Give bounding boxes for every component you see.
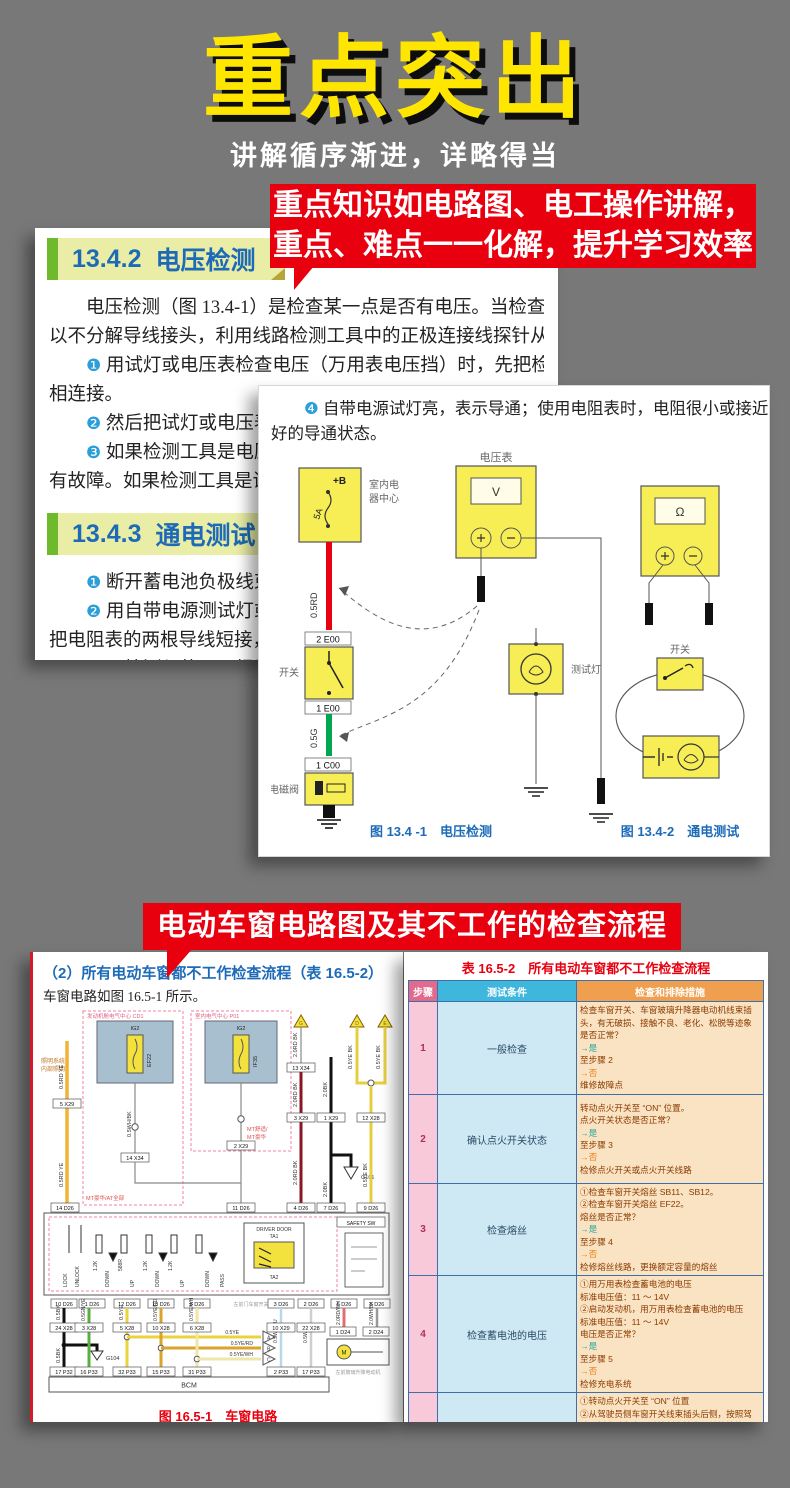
svg-text:0.5GN/YE: 0.5GN/YE: [81, 1298, 87, 1321]
connector: 9 D26: [357, 1203, 385, 1212]
section-number: 13.4.3: [72, 520, 142, 549]
svg-text:11 D26: 11 D26: [232, 1206, 249, 1212]
connector: 2 X29: [227, 1141, 255, 1150]
step-cell: 3: [409, 1184, 438, 1276]
svg-text:1.2K: 1.2K: [168, 1260, 174, 1271]
connector: 1 X29: [317, 1113, 345, 1122]
svg-text:UNLOCK: UNLOCK: [75, 1265, 81, 1287]
svg-text:0.5YE BK: 0.5YE BK: [348, 1045, 354, 1069]
connector: 11 D26: [227, 1203, 255, 1212]
connector: 17 P33: [297, 1367, 325, 1376]
svg-text:开关: 开关: [279, 666, 299, 679]
actions-cell: 检查车窗开关、车窗玻璃升降器电动机线束插头，有无破损、接触不良、老化、松脱等迹象…: [577, 1002, 764, 1095]
svg-text:0.5WH/BK: 0.5WH/BK: [127, 1111, 133, 1137]
col-header-step: 步骤: [409, 981, 438, 1002]
svg-text:2 E00: 2 E00: [316, 634, 340, 644]
svg-text:0.5RD: 0.5RD: [309, 592, 319, 618]
circuit-heading: （2）所有电动车窗都不工作检查流程（表 16.5-2）: [43, 962, 397, 983]
svg-text:2.0WH/BK: 2.0WH/BK: [369, 1301, 375, 1325]
svg-text:SAFETY SW: SAFETY SW: [347, 1221, 376, 1227]
svg-text:1.2K: 1.2K: [93, 1260, 99, 1271]
callout-tail: [167, 948, 193, 978]
svg-text:13 X34: 13 X34: [292, 1066, 309, 1072]
svg-text:0.5RD YE: 0.5RD YE: [59, 1162, 65, 1187]
probe: [705, 603, 713, 625]
table-row: 4检查蓄电池的电压①用万用表检查蓄电池的电压标准电压值：11 ～ 14V②启动发…: [409, 1276, 764, 1393]
svg-text:G: G: [299, 1021, 303, 1027]
svg-text:1 X29: 1 X29: [324, 1116, 338, 1122]
svg-text:16 P33: 16 P33: [80, 1370, 97, 1376]
svg-text:发动机舱电气中心 CD1: 发动机舱电气中心 CD1: [87, 1012, 144, 1020]
connector: 14 D26: [51, 1203, 79, 1212]
svg-text:2 D24: 2 D24: [369, 1330, 384, 1336]
section-number: 13.4.2: [72, 245, 142, 274]
table-row: 2确认点火开关状态转动点火开关至 “ON” 位置。点火开关状态是否正常？→是至步…: [409, 1095, 764, 1184]
actions-cell: ①检查车窗开关熔丝 SB11、SB12。②检查车窗开关熔丝 EF22。熔丝是否正…: [577, 1184, 764, 1276]
svg-text:室内电: 室内电: [369, 478, 399, 491]
section-title: 电压检测: [156, 241, 256, 277]
callout-top-line2: 重点、难点一一化解，提升学习效率: [270, 226, 756, 266]
svg-text:2 X29: 2 X29: [234, 1144, 248, 1150]
svg-text:5 X29: 5 X29: [60, 1102, 74, 1108]
svg-text:DOWN: DOWN: [105, 1271, 111, 1287]
svg-text:2.0BK: 2.0BK: [323, 1182, 329, 1197]
switch-box: 开关: [279, 647, 353, 699]
probe-arrow-2: [339, 610, 479, 736]
svg-text:MT舒适/: MT舒适/: [247, 1125, 268, 1133]
svg-text:M: M: [342, 1351, 347, 1357]
connector: 10 X28: [147, 1323, 175, 1332]
connector: 13 X34: [287, 1063, 315, 1072]
note-line1: 自带电源试灯亮，表示导通；使用电阻表时，电阻很小或接近 0，表示该部件具有良: [323, 399, 770, 418]
window-circuit-page: （2）所有电动车窗都不工作检查流程（表 16.5-2） 车窗电路如图 16.5-…: [30, 952, 403, 1422]
callout-tail: [294, 266, 314, 290]
svg-text:0.5YE/RD: 0.5YE/RD: [231, 1341, 254, 1347]
svg-text:IG2: IG2: [237, 1026, 246, 1032]
connector: 4 D26: [287, 1203, 315, 1212]
connector: 15 P33: [147, 1367, 175, 1376]
connector: 8 D26: [184, 1299, 210, 1308]
svg-text:588R: 588R: [118, 1259, 124, 1271]
svg-text:开关: 开关: [670, 643, 690, 656]
connector-1C00: 1 C00: [305, 758, 351, 771]
svg-text:10 X28: 10 X28: [152, 1326, 169, 1332]
solenoid-valve: 电磁阀: [271, 773, 353, 805]
svg-text:DOWN: DOWN: [155, 1271, 161, 1287]
svg-text:电磁阀: 电磁阀: [271, 783, 299, 796]
svg-text:2.0RD BK: 2.0RD BK: [293, 1160, 299, 1185]
svg-text:UP: UP: [130, 1279, 136, 1287]
svg-text:Ω: Ω: [676, 505, 685, 519]
connector: 6 D26: [331, 1299, 357, 1308]
svg-text:17 P32: 17 P32: [55, 1370, 72, 1376]
table-title: 表 16.5-2 所有电动车窗都不工作检查流程: [404, 958, 768, 977]
section-header-1342: 13.4.2 电压检测: [47, 238, 285, 280]
connector: 2 D24: [363, 1327, 389, 1336]
connector: 5 D26: [364, 1299, 390, 1308]
svg-text:DOWN: DOWN: [205, 1271, 211, 1287]
svg-text:7 D26: 7 D26: [324, 1206, 339, 1212]
svg-text:2.0RD/WH: 2.0RD/WH: [336, 1301, 342, 1325]
callout-top-line1: 重点知识如电路图、电工操作讲解，: [270, 186, 756, 226]
book-line: 以不分解导线接头，利用线路检测工具中的正极连接线探针从导线接头: [49, 323, 544, 352]
callout-middle-text: 电动车窗电路图及其不工作的检查流程: [157, 910, 667, 942]
note-line2: 好的导通状态。: [271, 424, 387, 443]
svg-text:LOCK: LOCK: [63, 1273, 69, 1287]
svg-text:2.0RD BK: 2.0RD BK: [293, 1032, 299, 1057]
driver-door-switch: DRIVER DOOR TA1 TA2: [244, 1223, 304, 1283]
connector: 13 D26: [148, 1299, 174, 1308]
connector: 10 X29: [267, 1323, 295, 1332]
svg-text:17 P33: 17 P33: [302, 1370, 319, 1376]
svg-text:器中心: 器中心: [369, 492, 399, 505]
window-motor: M: [327, 1339, 389, 1365]
svg-text:3 X29: 3 X29: [294, 1116, 308, 1122]
connector: 16 P33: [75, 1367, 103, 1376]
section-header-1343: 13.4.3 通电测试: [47, 513, 285, 555]
connector: 12 X28: [357, 1113, 385, 1122]
connector: 7 D26: [317, 1203, 345, 1212]
svg-text:32 P33: 32 P33: [118, 1370, 135, 1376]
svg-text:0.5YE BK: 0.5YE BK: [363, 1163, 369, 1187]
connector-1E00: 1 E00: [305, 701, 351, 714]
svg-text:0.5YE: 0.5YE: [225, 1330, 239, 1336]
connector: 1 D24: [330, 1327, 356, 1336]
svg-text:1 D24: 1 D24: [336, 1330, 351, 1336]
svg-text:IF35: IF35: [253, 1056, 259, 1067]
connector: 31 P33: [183, 1367, 211, 1376]
svg-text:31 P33: 31 P33: [188, 1370, 205, 1376]
svg-text:0.5YE BK: 0.5YE BK: [376, 1045, 382, 1069]
svg-text:10 X29: 10 X29: [272, 1326, 289, 1332]
connector: 3 X28: [75, 1323, 103, 1332]
svg-text:D: D: [355, 1021, 359, 1027]
condition-cell: 检查熔丝: [438, 1184, 577, 1276]
probe: [477, 576, 485, 602]
svg-text:测试灯: 测试灯: [571, 663, 601, 676]
svg-text:14 X34: 14 X34: [126, 1156, 143, 1162]
check-table: 步骤 测试条件 检查和排除措施 1一般检查检查车窗开关、车窗玻璃升降器电动机线束…: [408, 980, 764, 1422]
svg-text:IG2: IG2: [131, 1026, 140, 1032]
step-cell: 4: [409, 1276, 438, 1393]
connector: 5 X29: [53, 1099, 81, 1108]
safety-switch-box: SAFETY SW: [337, 1217, 385, 1227]
svg-text:DRIVER DOOR: DRIVER DOOR: [256, 1227, 292, 1233]
svg-text:0.5YE/WH: 0.5YE/WH: [189, 1297, 195, 1321]
col-header-condition: 测试条件: [438, 981, 577, 1002]
voltage-check-figure: 电压表 +B 5A 室内电 器中心 0.5RD 2 E00 开关 1: [271, 448, 753, 840]
actions-cell: ①转动点火开关至 “ON” 位置②从驾驶员侧车窗开关线束插头后侧，按照驾驶员侧电…: [577, 1393, 764, 1422]
probe: [645, 603, 653, 625]
connector: 10 D26: [51, 1299, 77, 1308]
voltmeter-label: 电压表: [480, 450, 513, 464]
svg-text:MT豪华/AT全部: MT豪华/AT全部: [86, 1194, 125, 1202]
test-lamp: 测试灯: [509, 642, 601, 696]
connector: 6 X28: [183, 1323, 211, 1332]
svg-text:+B: +B: [333, 476, 346, 487]
svg-text:0.5BK: 0.5BK: [56, 1305, 62, 1320]
svg-text:BCM: BCM: [181, 1383, 197, 1390]
continuity-switch: 开关: [657, 643, 703, 690]
svg-text:0.5BK: 0.5BK: [56, 1348, 62, 1363]
svg-text:G104: G104: [106, 1356, 119, 1362]
promo-graphic: 重点突出 讲解循序渐进，详略得当 重点知识如电路图、电工操作讲解， 重点、难点一…: [0, 0, 790, 1488]
svg-text:14 D26: 14 D26: [56, 1206, 74, 1212]
actions-cell: 转动点火开关至 “ON” 位置。点火开关状态是否正常？→是至步骤 3→否检修点火…: [577, 1095, 764, 1184]
connector: 3 D26: [268, 1299, 294, 1308]
connector: 12 D26: [114, 1299, 140, 1308]
diagram-page: ❹ 自带电源试灯亮，表示导通；使用电阻表时，电阻很小或接近 0，表示该部件具有良…: [258, 385, 770, 857]
ground-symbol: [524, 788, 548, 796]
table-row: 3检查熔丝①检查车窗开关熔丝 SB11、SB12。②检查车窗开关熔丝 EF22。…: [409, 1184, 764, 1276]
connector: 14 X34: [121, 1153, 149, 1162]
connector: 2 P33: [267, 1367, 295, 1376]
connector: 5 X28: [113, 1323, 141, 1332]
svg-text:2 P33: 2 P33: [274, 1370, 288, 1376]
circuit-caption: 图 16.5-1 车窗电路: [33, 1406, 403, 1422]
svg-text:2.0RD BK: 2.0RD BK: [293, 1082, 299, 1107]
svg-text:C: C: [267, 1358, 271, 1364]
ground-symbol: [589, 814, 613, 822]
ground-G104: [91, 1351, 103, 1360]
condition-cell: 检查蓄电池的电压: [438, 1276, 577, 1393]
table-row: 1一般检查检查车窗开关、车窗玻璃升降器电动机线束插头，有无破损、接触不良、老化、…: [409, 1002, 764, 1095]
check-table-page: 表 16.5-2 所有电动车窗都不工作检查流程 步骤 测试条件 检查和排除措施 …: [404, 952, 768, 1422]
condition-cell: 一般检查: [438, 1002, 577, 1095]
connector: 17 P32: [50, 1367, 78, 1376]
svg-text:TA1: TA1: [270, 1234, 279, 1240]
voltmeter: V: [456, 466, 536, 558]
window-circuit-figure: 照明系统- 内部照明 0.5RD YE 0.5RD YE 5 X29 发动机舱电…: [39, 1007, 394, 1399]
svg-text:UP: UP: [180, 1279, 186, 1287]
svg-text:9 D26: 9 D26: [364, 1206, 379, 1212]
svg-text:15 P33: 15 P33: [152, 1370, 169, 1376]
connector: 22 X28: [297, 1323, 325, 1332]
table-row: 5检查驾驶员侧电动车窗开关①转动点火开关至 “ON” 位置②从驾驶员侧车窗开关线…: [409, 1393, 764, 1422]
svg-text:EF22: EF22: [147, 1054, 153, 1067]
condition-cell: 检查驾驶员侧电动车窗开关: [438, 1393, 577, 1422]
svg-text:1 C00: 1 C00: [316, 760, 340, 770]
svg-text:2 D26: 2 D26: [304, 1302, 319, 1308]
note-badge: ❹: [304, 399, 319, 418]
svg-text:左前玻璃升降电动机: 左前玻璃升降电动机: [335, 1369, 380, 1376]
connector: 3 X29: [287, 1113, 315, 1122]
svg-text:12 X28: 12 X28: [362, 1116, 379, 1122]
diagram-note: ❹ 自带电源试灯亮，表示导通；使用电阻表时，电阻很小或接近 0，表示该部件具有良…: [271, 396, 757, 446]
svg-text:1 E00: 1 E00: [316, 703, 340, 713]
svg-text:22 X28: 22 X28: [302, 1326, 319, 1332]
section-title: 通电测试: [156, 516, 256, 552]
col-header-actions: 检查和排除措施: [577, 981, 764, 1002]
svg-text:2.0BK: 2.0BK: [323, 1082, 329, 1097]
actions-cell: ①用万用表检查蓄电池的电压标准电压值：11 ～ 14V②启动发动机，用万用表检查…: [577, 1276, 764, 1393]
svg-text:左前门车窗开关: 左前门车窗开关: [233, 1301, 268, 1308]
svg-text:MT豪华: MT豪华: [247, 1133, 266, 1141]
circuit-subheading: 车窗电路如图 16.5-1 所示。: [43, 985, 403, 1005]
connector: 2 D26: [298, 1299, 324, 1308]
callout-middle: 电动车窗电路图及其不工作的检查流程: [143, 903, 681, 950]
svg-text:0.5YE/WH: 0.5YE/WH: [230, 1352, 254, 1358]
svg-text:24 X28: 24 X28: [55, 1326, 72, 1332]
ohmmeter: Ω: [641, 486, 719, 576]
svg-text:PASS: PASS: [220, 1273, 226, 1287]
hero-title: 重点突出: [0, 34, 790, 124]
ground-G101: [344, 1167, 358, 1179]
ground-stub: [323, 805, 335, 818]
svg-text:3 D26: 3 D26: [274, 1302, 289, 1308]
svg-text:0.5YE/RD: 0.5YE/RD: [153, 1298, 159, 1321]
svg-text:3 X28: 3 X28: [82, 1326, 96, 1332]
connector-2E00: 2 E00: [305, 632, 351, 645]
svg-text:V: V: [492, 485, 500, 499]
svg-text:0.5RD YE: 0.5RD YE: [59, 1064, 65, 1089]
svg-text:1.2K: 1.2K: [143, 1260, 149, 1271]
book-line: 电压检测（图 13.4-1）是检查某一点是否有电压。当检查导线接: [49, 294, 544, 323]
hero-subtitle: 讲解循序渐进，详略得当: [0, 134, 790, 173]
svg-text:4 D26: 4 D26: [294, 1206, 309, 1212]
svg-text:0.5G: 0.5G: [309, 728, 319, 748]
step-cell: 1: [409, 1002, 438, 1095]
figure1-caption: 图 13.4 -1 电压检测: [370, 824, 492, 839]
check-table-rows: 1一般检查检查车窗开关、车窗玻璃升降器电动机线束插头，有无破损、接触不良、老化、…: [409, 1002, 764, 1423]
figure2-caption: 图 13.4-2 通电测试: [621, 824, 739, 839]
svg-text:TA2: TA2: [270, 1275, 279, 1281]
svg-text:0.5YE: 0.5YE: [119, 1305, 125, 1320]
ground-symbol: [317, 820, 341, 828]
battery-lamp-box: [643, 736, 719, 778]
callout-top: 重点知识如电路图、电工操作讲解， 重点、难点一一化解，提升学习效率: [270, 184, 756, 268]
svg-text:6 X28: 6 X28: [190, 1326, 204, 1332]
probe: [597, 778, 605, 804]
probe-arrow-1: [339, 588, 477, 629]
svg-text:室内电气中心 P01: 室内电气中心 P01: [195, 1012, 239, 1020]
step-cell: 2: [409, 1095, 438, 1184]
svg-text:照明系统-: 照明系统-: [41, 1057, 67, 1065]
step-cell: 5: [409, 1393, 438, 1422]
connector: 24 X28: [50, 1323, 78, 1332]
svg-text:5 X28: 5 X28: [120, 1326, 134, 1332]
condition-cell: 确认点火开关状态: [438, 1095, 577, 1184]
connector: 32 P33: [113, 1367, 141, 1376]
fuse-box: +B 5A 室内电 器中心: [299, 468, 399, 542]
book-line: ❶ 用试灯或电压表检查电压（万用表电压挡）时，先把检测工具: [49, 352, 544, 381]
